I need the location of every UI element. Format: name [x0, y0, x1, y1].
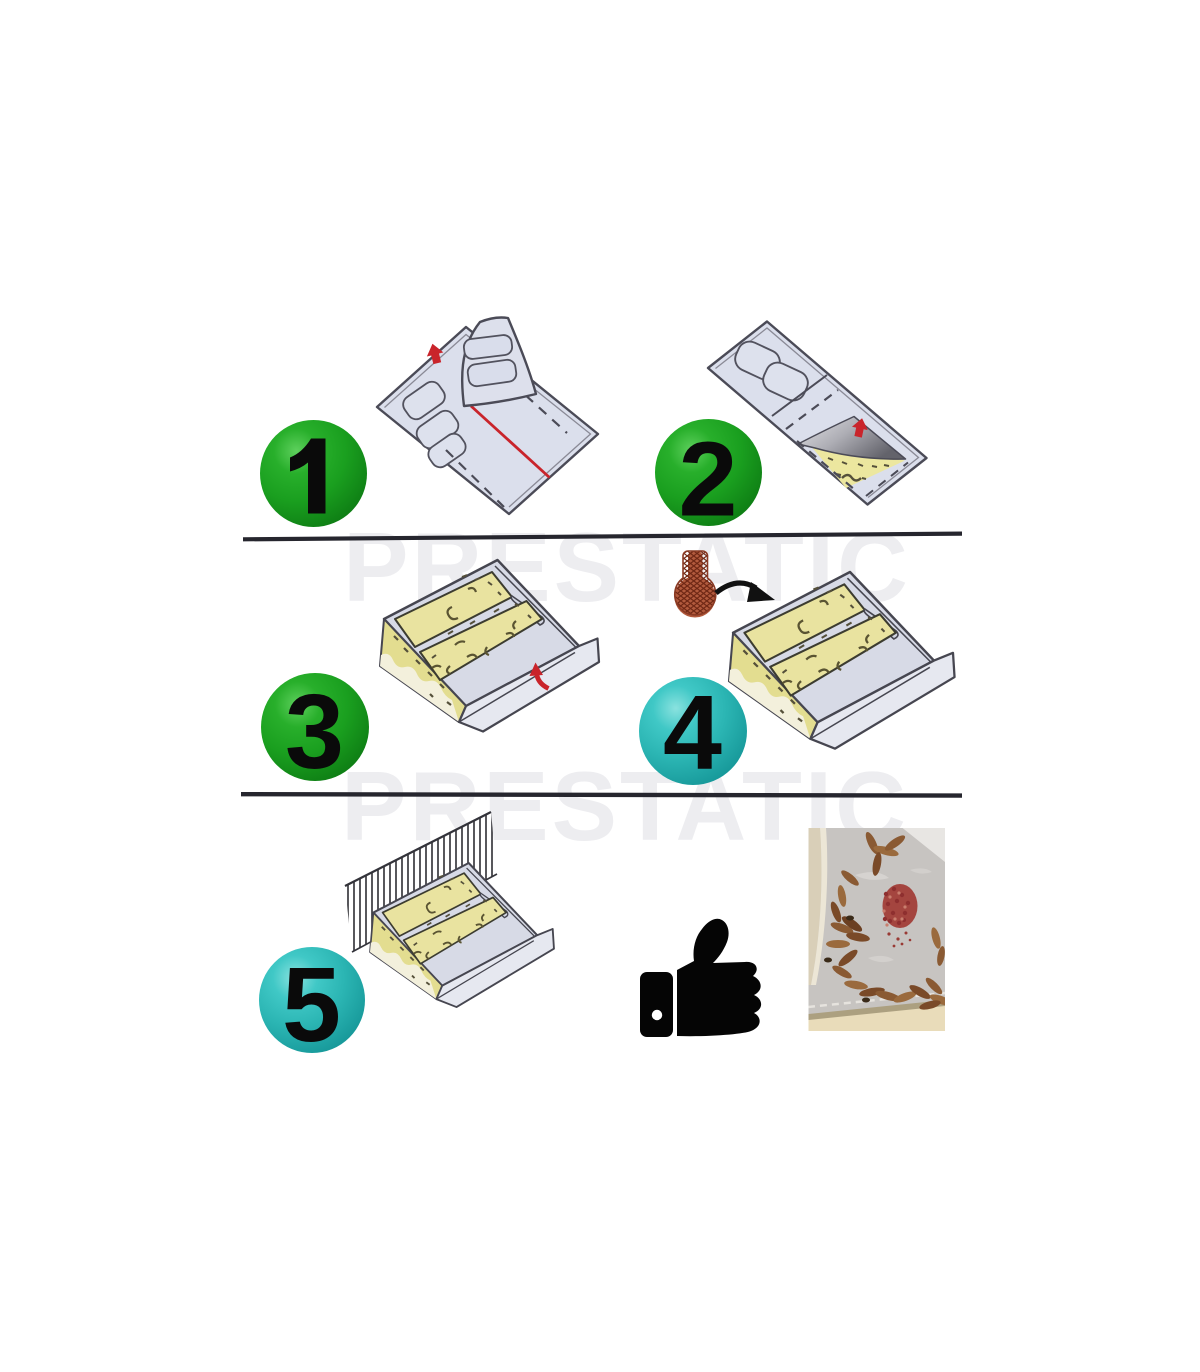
svg-text:2: 2 — [679, 421, 738, 539]
svg-text:5: 5 — [282, 946, 341, 1064]
svg-text:3: 3 — [285, 673, 344, 791]
svg-text:4: 4 — [663, 674, 722, 792]
